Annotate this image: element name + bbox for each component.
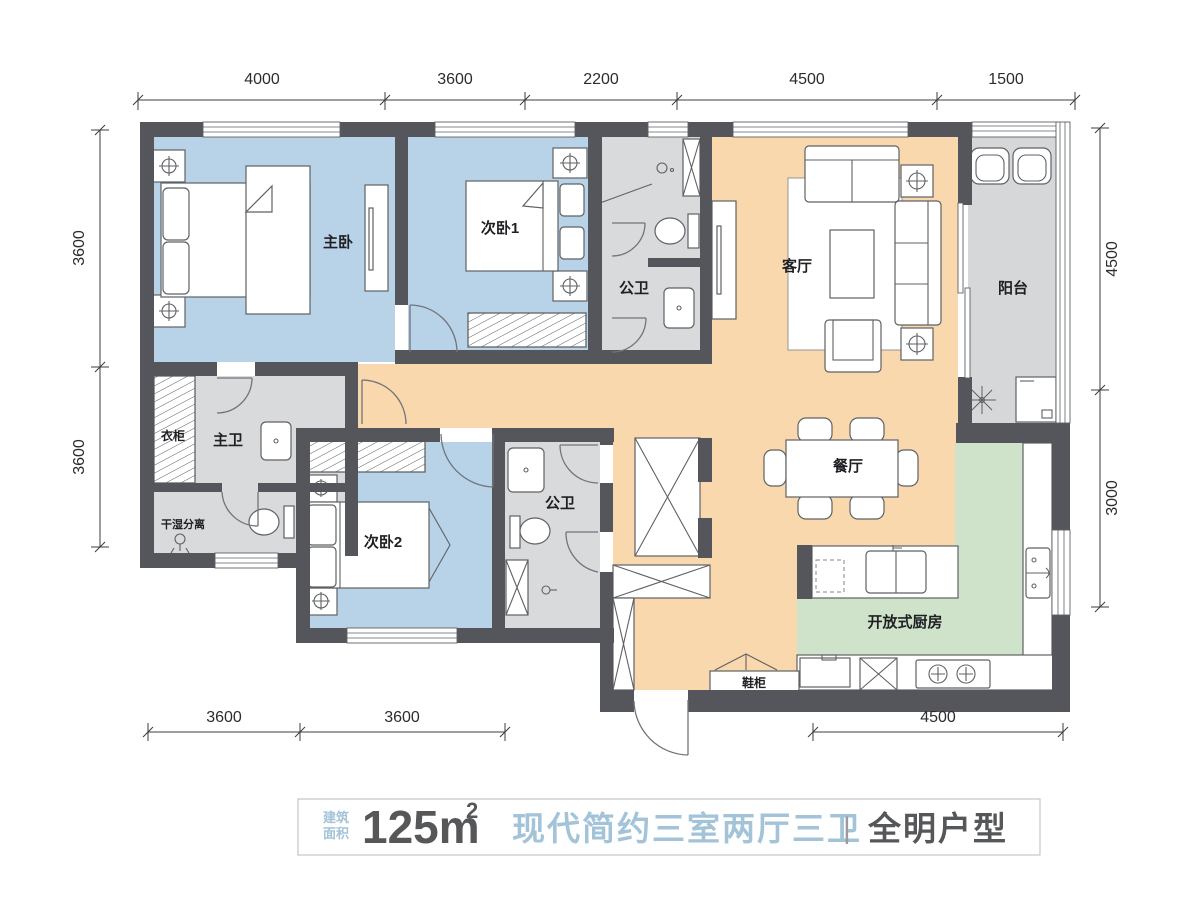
wardrobe-icon (305, 438, 425, 472)
caption-area-sup: 2 (466, 798, 478, 823)
pillow-icon (308, 505, 336, 545)
toilet-icon (249, 506, 294, 538)
room-label-master-bedroom: 主卧 (323, 233, 353, 251)
base-cabinet (800, 658, 850, 687)
chair-icon (798, 418, 832, 442)
kitchen-sink-icon (1026, 548, 1050, 598)
room-label-wardrobe: 衣柜 (161, 428, 185, 443)
dim-right-1: 4500 (1104, 241, 1121, 277)
room-label-dining: 餐厅 (833, 457, 863, 475)
caption: 建筑 面积 125m 2 现代简约三室两厅三卫 | 全明户型 (298, 798, 1040, 855)
caption-area-label-top: 建筑 (323, 810, 349, 825)
tv-cabinet-icon (712, 201, 736, 319)
bed-icon (161, 166, 310, 314)
pillow-icon (163, 242, 189, 294)
plant-icon (968, 386, 996, 414)
stove-icon (916, 660, 990, 688)
room-label-bedroom2: 次卧1 (481, 219, 519, 237)
washing-machine-icon (1016, 377, 1056, 422)
window-icon (215, 553, 278, 568)
caption-area-label-bottom: 面积 (323, 826, 349, 841)
room-label-living: 客厅 (781, 257, 812, 275)
caption-separator: | (843, 812, 851, 845)
dining-kitchen-strip (712, 548, 797, 690)
dim-top-3: 2200 (583, 71, 619, 88)
dim-right-2: 3000 (1104, 480, 1121, 516)
hallway (345, 364, 613, 428)
room-label-dry-wet: 干湿分离 (161, 517, 205, 531)
dim-left-1: 3600 (71, 230, 88, 266)
dim-bottom-1: 3600 (206, 709, 242, 726)
dim-top-1: 4000 (244, 71, 280, 88)
sink-icon (261, 422, 291, 460)
chair-icon (850, 418, 884, 442)
room-label-bedroom3: 次卧2 (364, 533, 402, 551)
loveseat-icon (805, 146, 899, 202)
pillow-icon (308, 547, 336, 587)
sofa-icon (895, 201, 941, 325)
room-label-shoe-cabinet: 鞋柜 (742, 675, 766, 690)
dim-top-5: 1500 (988, 71, 1024, 88)
chair-icon (798, 495, 832, 519)
caption-subtitle: 全明户型 (867, 810, 1008, 847)
armchair-icon (825, 320, 881, 372)
balcony-chair-icon (1013, 148, 1051, 184)
pillow-icon (560, 227, 584, 259)
entry-door-arc-icon (634, 700, 688, 755)
dim-bottom-3: 4500 (920, 709, 956, 726)
dim-bottom-2: 3600 (384, 709, 420, 726)
room-label-bath-master: 主卫 (213, 431, 243, 449)
chair-icon (896, 450, 918, 486)
dim-top-4: 4500 (789, 71, 825, 88)
chair-icon (850, 495, 884, 519)
floor-plan-drawing: 主卧 次卧1 次卧2 公卫 公卫 主卫 客厅 餐厅 阳台 衣柜 干湿分离 开放式… (0, 0, 1202, 898)
caption-area-value: 125m (362, 801, 480, 853)
room-label-bath-bottom: 公卫 (545, 495, 575, 512)
room-label-kitchen: 开放式厨房 (867, 613, 942, 631)
window-icon (347, 628, 457, 643)
tv-icon (717, 226, 721, 294)
sink-icon (508, 448, 544, 492)
window-icon (203, 122, 340, 137)
chair-icon (764, 450, 786, 486)
pillow-icon (163, 188, 189, 240)
window-icon (648, 122, 688, 137)
caption-style-title: 现代简约三室两厅三卫 (512, 810, 862, 847)
window-icon (435, 122, 575, 137)
window-icon (1052, 530, 1070, 615)
island-sink-icon (866, 545, 926, 593)
sink-icon (664, 288, 694, 328)
dim-left-2: 3600 (71, 439, 88, 475)
window-icon (733, 122, 908, 137)
pillow-icon (560, 184, 584, 216)
floor-plan-page: 主卧 次卧1 次卧2 公卫 公卫 主卫 客厅 餐厅 阳台 衣柜 干湿分离 开放式… (0, 0, 1202, 898)
dim-top-2: 3600 (437, 71, 473, 88)
coffee-table-icon (830, 230, 874, 298)
wardrobe-icon (468, 313, 586, 347)
room-label-balcony: 阳台 (998, 279, 1028, 297)
balcony-chair-icon (971, 148, 1009, 184)
room-label-bath-top: 公卫 (619, 280, 649, 297)
